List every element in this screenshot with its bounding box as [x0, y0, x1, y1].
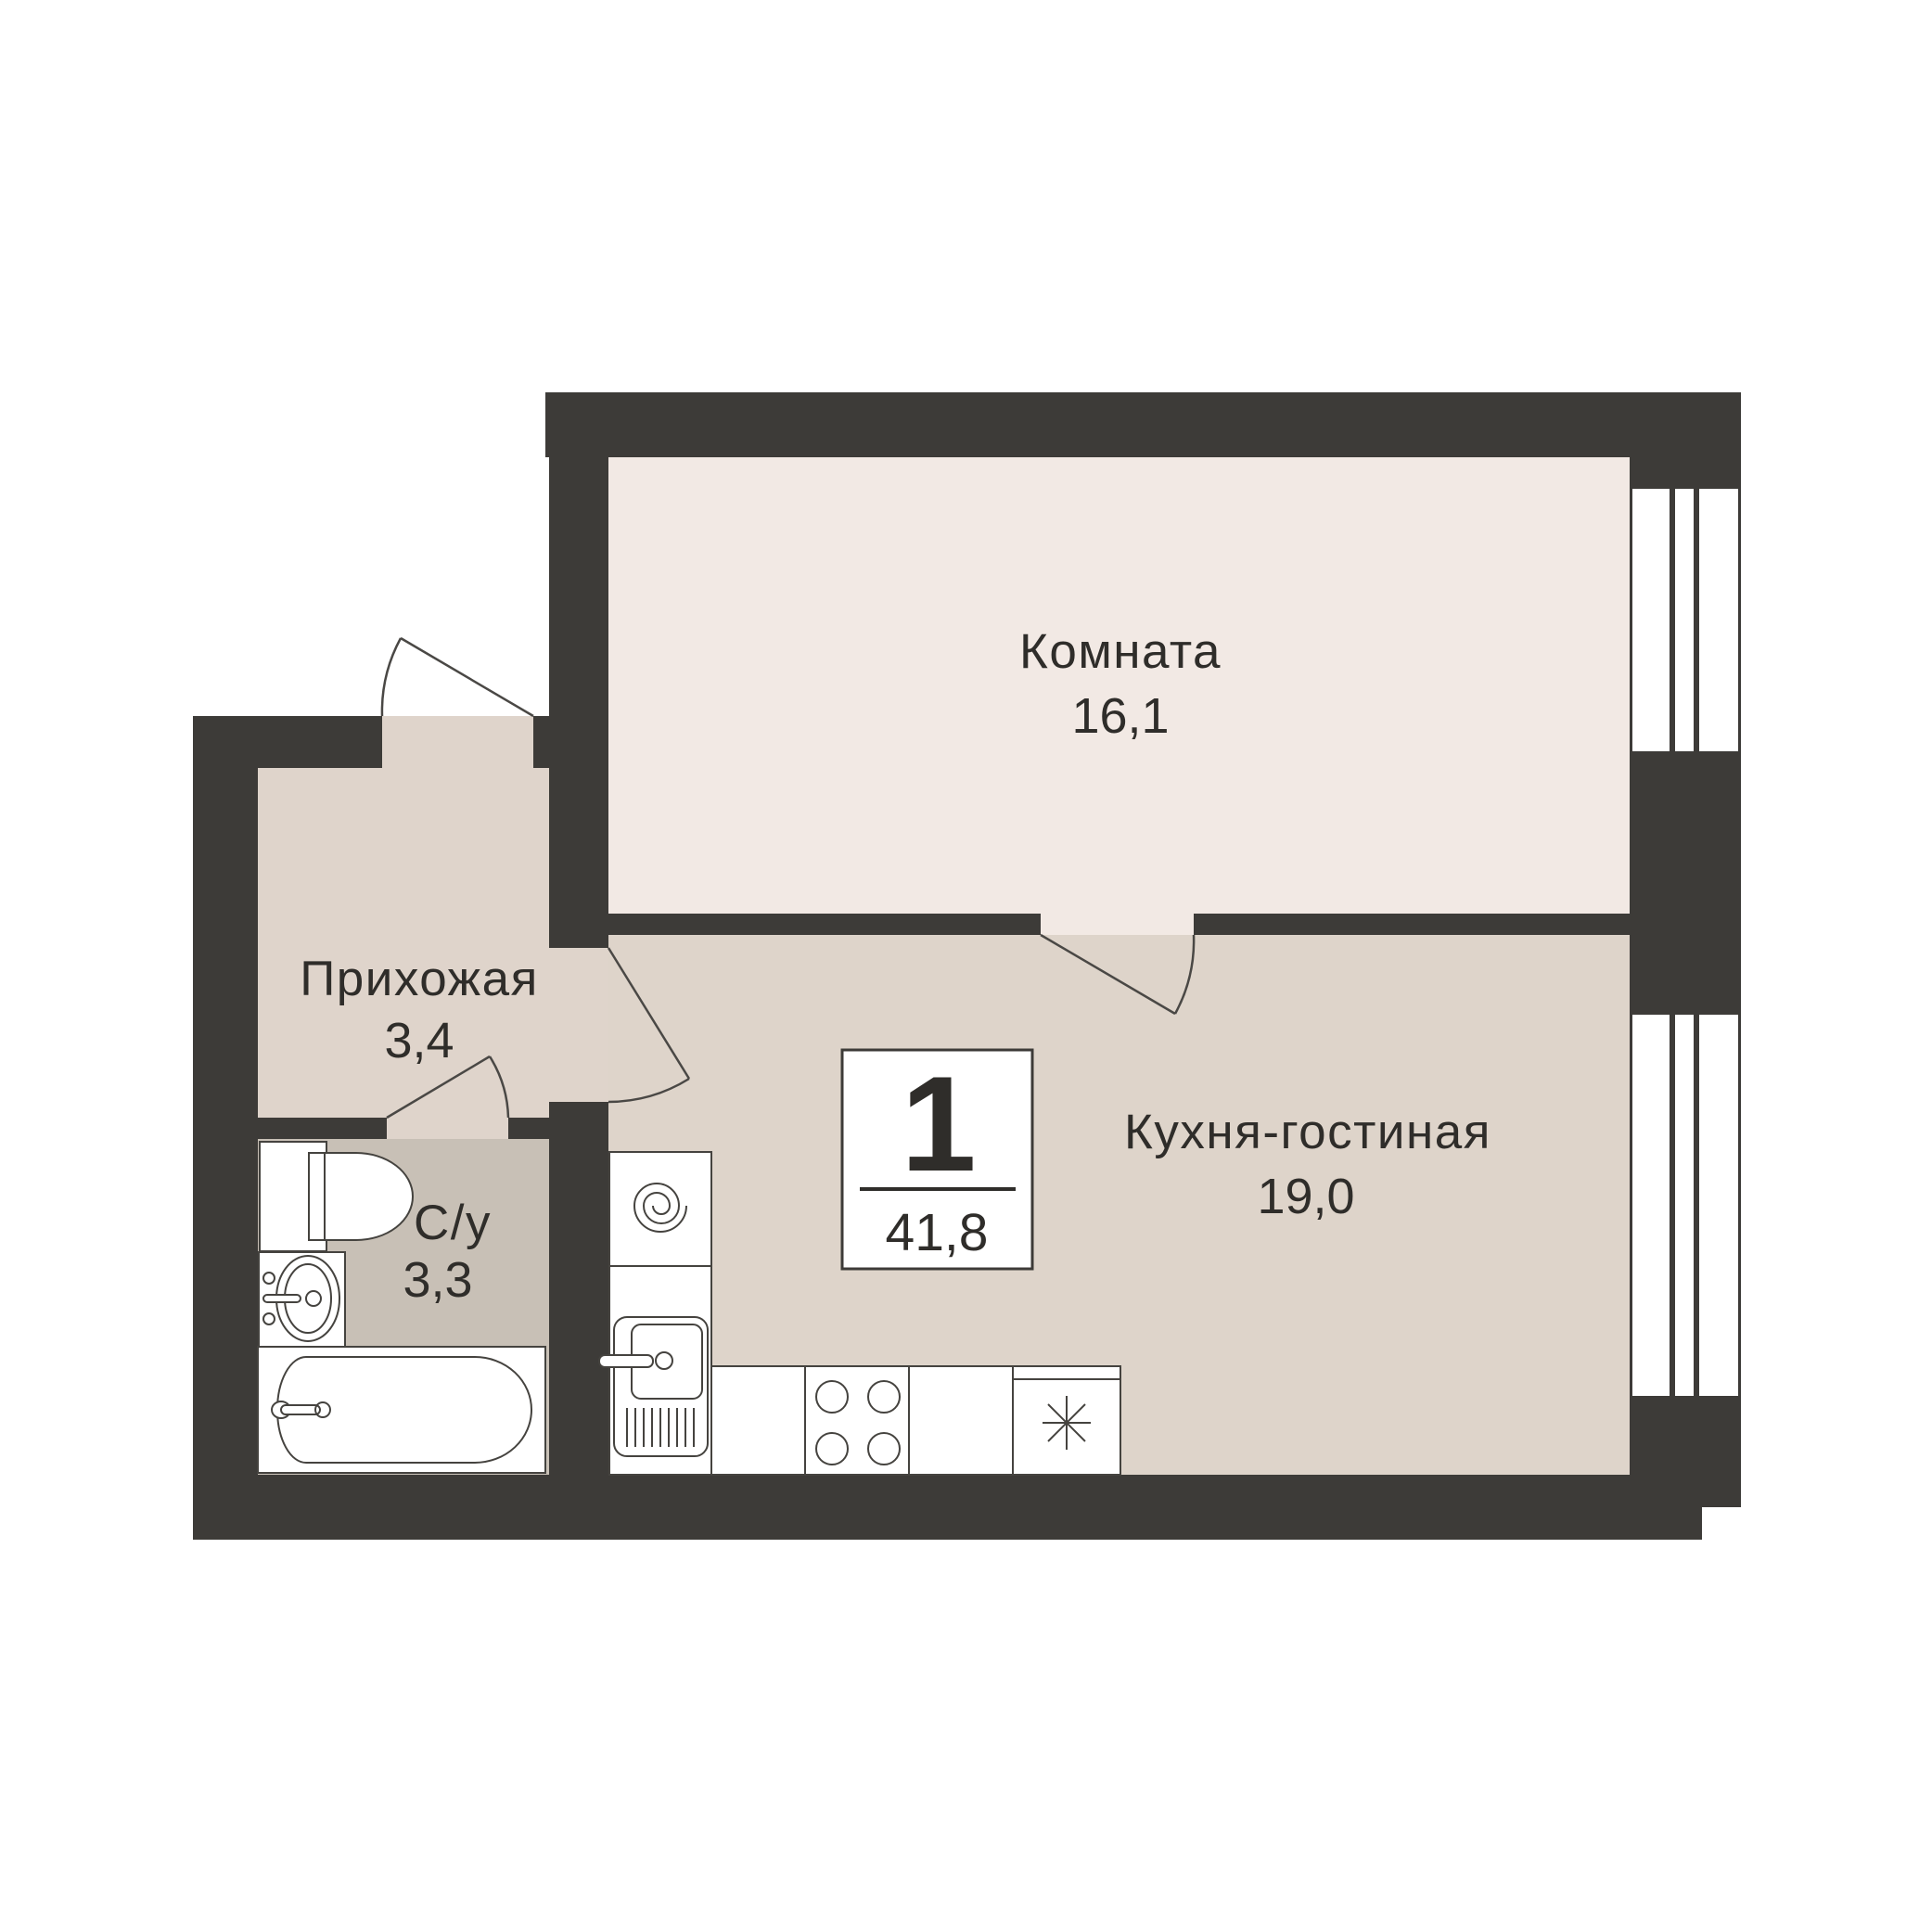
wall-room-kitchen-left	[608, 914, 1041, 935]
window-pane	[1674, 488, 1695, 752]
apartment-badge: 1 41,8	[842, 1048, 1032, 1269]
wash-basin-icon	[259, 1252, 345, 1347]
window-pane	[1631, 1014, 1670, 1397]
bathroom-door-opening-floor	[387, 1118, 508, 1139]
floor-plan-page: Комната 16,1 Кухня-гостиная 19,0 Прихожа…	[0, 0, 1932, 1932]
wall-hall-top-left	[193, 716, 382, 768]
wall-room-kitchen-right	[1194, 914, 1630, 935]
room-window	[1631, 488, 1739, 752]
bathroom-area: 3,3	[403, 1252, 472, 1308]
room-label: Комната	[1019, 624, 1222, 679]
hallway-area: 3,4	[384, 1013, 454, 1068]
wall-bathroom-top-right	[508, 1118, 549, 1139]
window-pane	[1698, 488, 1739, 752]
wall-hall-room-lower	[549, 1102, 608, 1475]
kitchen-label: Кухня-гостиная	[1124, 1105, 1491, 1159]
room-area: 16,1	[1071, 688, 1169, 744]
floor-plan: Комната 16,1 Кухня-гостиная 19,0 Прихожа…	[0, 0, 1932, 1932]
wall-left	[193, 716, 258, 1540]
wall-hall-top-right	[533, 716, 549, 768]
washing-machine-icon	[609, 1152, 711, 1266]
window-pane	[1631, 488, 1670, 752]
kitchen-counter-row	[711, 1366, 1120, 1475]
entry-door-leaf	[401, 638, 533, 716]
window-pane	[1674, 1014, 1695, 1397]
bathtub-icon	[258, 1347, 545, 1473]
entry-door-arc	[382, 638, 401, 716]
wall-bottom	[193, 1475, 1702, 1540]
wall-bathroom-top-left	[258, 1118, 387, 1139]
kitchen-area: 19,0	[1257, 1169, 1354, 1224]
window-pane	[1698, 1014, 1739, 1397]
kitchen-sink-icon	[599, 1317, 708, 1456]
entry-door	[382, 638, 533, 716]
badge-total-area: 41,8	[886, 1203, 989, 1262]
badge-rooms-count: 1	[901, 1048, 976, 1199]
wall-top	[545, 392, 1741, 457]
entry-door-opening-floor	[382, 716, 533, 768]
room-floor	[607, 457, 1630, 914]
hall-kitchen-opening-floor	[549, 948, 608, 1102]
kitchen-window	[1631, 1014, 1739, 1397]
bathroom-label: С/у	[414, 1196, 492, 1250]
hallway-label: Прихожая	[300, 952, 539, 1006]
wall-hall-room-upper	[549, 392, 608, 948]
room-door-opening-floor	[1041, 914, 1194, 935]
